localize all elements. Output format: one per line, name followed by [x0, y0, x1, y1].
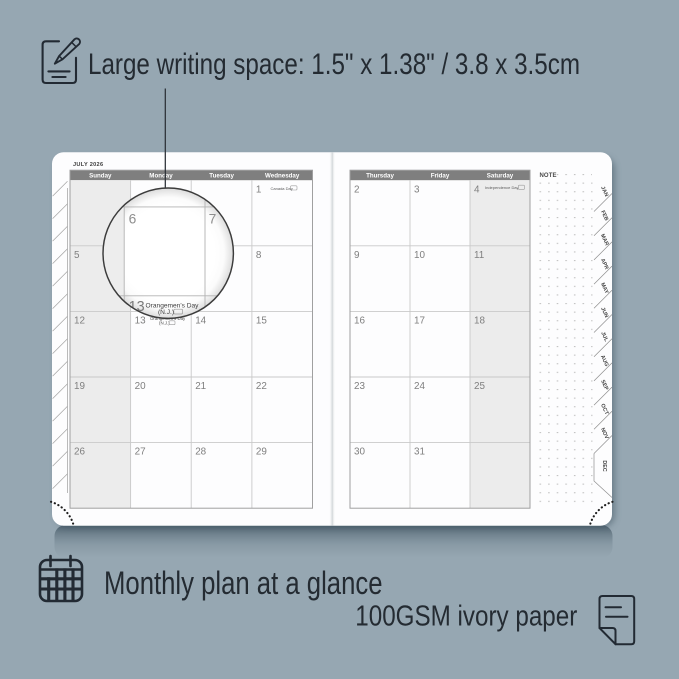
svg-text:2: 2 [354, 184, 360, 195]
svg-text:5: 5 [74, 250, 80, 261]
svg-text:11: 11 [474, 250, 485, 261]
svg-text:19: 19 [74, 381, 85, 392]
svg-text:15: 15 [256, 316, 267, 327]
svg-text:10: 10 [414, 250, 425, 261]
svg-text:12: 12 [74, 316, 85, 327]
svg-text:Friday: Friday [431, 173, 450, 180]
svg-text:Sunday: Sunday [89, 173, 112, 180]
svg-text:30: 30 [354, 447, 365, 458]
svg-text:9: 9 [354, 250, 360, 261]
svg-text:(N.J.): (N.J.) [159, 321, 170, 326]
svg-text:20: 20 [135, 381, 146, 392]
svg-text:Saturday: Saturday [487, 173, 514, 180]
svg-text:DEC: DEC [601, 460, 607, 471]
svg-text:Thursday: Thursday [366, 173, 394, 180]
svg-text:29: 29 [256, 447, 267, 458]
svg-text:Monthly plan at a glance: Monthly plan at a glance [104, 565, 383, 601]
svg-text:Canada Day: Canada Day [271, 186, 293, 191]
svg-text:28: 28 [195, 447, 206, 458]
svg-text:Tuesday: Tuesday [209, 173, 234, 180]
svg-text:25: 25 [474, 381, 485, 392]
svg-text:Wednesday: Wednesday [265, 173, 300, 180]
svg-text:JULY 2026: JULY 2026 [73, 162, 103, 168]
svg-text:24: 24 [414, 381, 425, 392]
svg-text:8: 8 [256, 250, 262, 261]
svg-text:17: 17 [414, 316, 425, 327]
svg-text:(N.J.): (N.J.) [158, 309, 174, 316]
svg-text:21: 21 [195, 381, 206, 392]
svg-text:16: 16 [354, 316, 365, 327]
svg-text:13: 13 [135, 316, 146, 327]
svg-text:1: 1 [256, 184, 262, 195]
svg-text:26: 26 [74, 447, 85, 458]
svg-text:7: 7 [209, 211, 217, 226]
svg-text:18: 18 [474, 316, 485, 327]
svg-text:23: 23 [354, 381, 365, 392]
svg-text:Large writing space: 1.5" x 1.: Large writing space: 1.5" x 1.38" / 3.8 … [88, 48, 580, 81]
svg-text:4: 4 [474, 184, 480, 195]
svg-text:100GSM ivory paper: 100GSM ivory paper [355, 601, 577, 633]
svg-text:6: 6 [129, 211, 137, 226]
svg-text:Monday: Monday [149, 173, 173, 180]
svg-text:3: 3 [414, 184, 420, 195]
svg-text:31: 31 [414, 447, 425, 458]
svg-text:22: 22 [256, 381, 267, 392]
svg-text:14: 14 [195, 316, 206, 327]
svg-text:NOTE: NOTE [540, 173, 557, 179]
svg-text:Independence Day: Independence Day [485, 185, 519, 190]
svg-text:27: 27 [135, 447, 146, 458]
